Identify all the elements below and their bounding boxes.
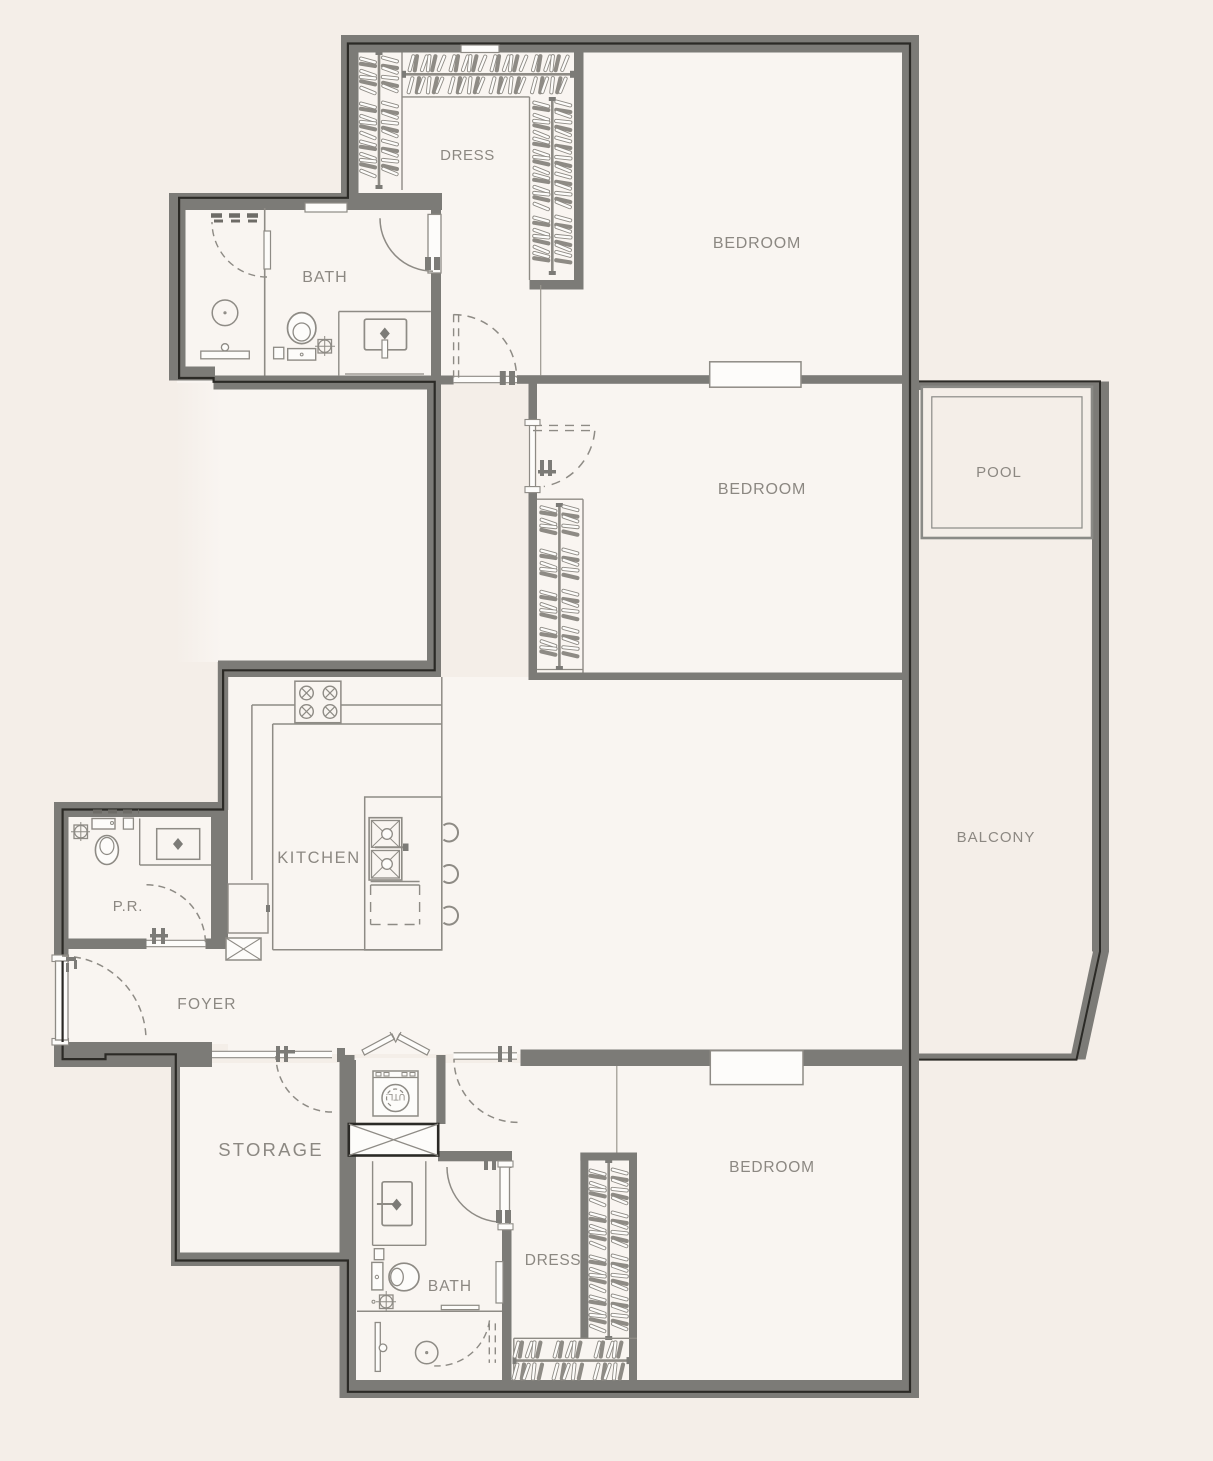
svg-text:KITCHEN: KITCHEN — [277, 849, 361, 867]
svg-text:BEDROOM: BEDROOM — [718, 481, 806, 498]
svg-text:POOL: POOL — [976, 464, 1022, 481]
svg-text:DRESS: DRESS — [525, 1252, 581, 1269]
svg-text:BATH: BATH — [302, 269, 347, 286]
svg-text:BATH: BATH — [428, 1278, 472, 1295]
svg-text:DRESS: DRESS — [440, 147, 495, 164]
svg-text:UTL.: UTL. — [386, 1092, 406, 1102]
svg-text:P.R.: P.R. — [113, 898, 143, 915]
svg-text:BEDROOM: BEDROOM — [729, 1159, 815, 1176]
svg-text:STORAGE: STORAGE — [218, 1139, 324, 1160]
svg-text:FOYER: FOYER — [177, 996, 236, 1013]
svg-text:BALCONY: BALCONY — [957, 829, 1036, 846]
svg-text:BEDROOM: BEDROOM — [713, 235, 801, 252]
